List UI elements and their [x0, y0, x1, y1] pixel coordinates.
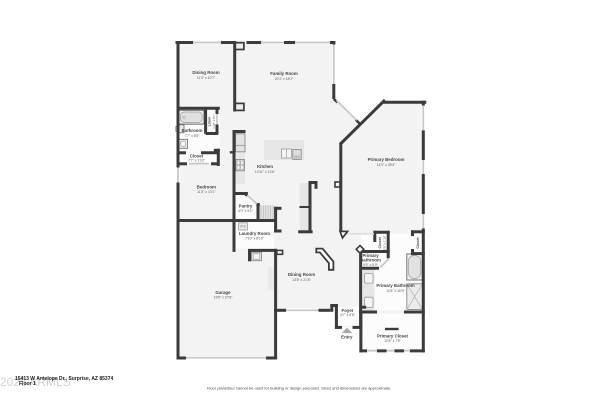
svg-text:11'3" x 13'1": 11'3" x 13'1": [197, 190, 216, 194]
svg-text:Closet: Closet: [416, 237, 420, 249]
svg-text:Entry: Entry: [341, 334, 353, 339]
svg-text:7'7" x 8'5": 7'7" x 8'5": [185, 134, 201, 138]
svg-text:Floor plans/tour cannot be use: Floor plans/tour cannot be used for buil…: [207, 386, 391, 391]
svg-text:Bathroom: Bathroom: [182, 128, 203, 133]
svg-text:Closet: Closet: [378, 236, 382, 248]
svg-text:13'8" x 21'8": 13'8" x 21'8": [292, 278, 311, 282]
svg-text:7'10" x 8'10": 7'10" x 8'10": [245, 236, 264, 240]
svg-text:7'7" x 1'10": 7'7" x 1'10": [188, 158, 206, 162]
svg-text:Dining Room: Dining Room: [288, 272, 315, 277]
svg-text:12'5" x 7'9": 12'5" x 7'9": [384, 339, 402, 343]
svg-text:11'8" x 16'9": 11'8" x 16'9": [386, 289, 405, 293]
svg-text:Family Room: Family Room: [270, 71, 298, 76]
svg-text:W/D: W/D: [240, 225, 247, 229]
svg-text:14'11" x 13'6": 14'11" x 13'6": [255, 170, 276, 174]
svg-text:Dining Room: Dining Room: [192, 70, 219, 75]
svg-text:Kitchen: Kitchen: [257, 164, 273, 169]
svg-text:Pantry: Pantry: [239, 204, 253, 209]
svg-text:5'9" x 5'9": 5'9" x 5'9": [363, 263, 379, 267]
svg-text:4'0" x 5'1": 4'0" x 5'1": [238, 209, 254, 213]
svg-text:Bedroom: Bedroom: [197, 185, 216, 190]
svg-text:Garage: Garage: [215, 290, 231, 295]
svg-text:20'1" x 18'1": 20'1" x 18'1": [275, 77, 294, 81]
svg-text:Primary Closet: Primary Closet: [377, 334, 409, 339]
svg-text:Floor 1: Floor 1: [19, 381, 36, 387]
svg-text:4'7" x 5'8": 4'7" x 5'8": [340, 313, 356, 317]
svg-text:Primary Bedroom: Primary Bedroom: [368, 157, 405, 162]
svg-text:14'3" x 28'3": 14'3" x 28'3": [377, 163, 396, 167]
svg-text:Linen: Linen: [208, 116, 212, 127]
svg-text:11'3" x 10'7": 11'3" x 10'7": [197, 76, 216, 80]
svg-text:3'9" x 1'10": 3'9" x 1'10": [382, 235, 386, 250]
svg-text:19'5" x 27'8": 19'5" x 27'8": [214, 295, 233, 299]
svg-text:Laundry Room: Laundry Room: [239, 231, 270, 236]
svg-text:1'10" x 4'1": 1'10" x 4'1": [212, 114, 216, 129]
svg-text:Primary Bathroom: Primary Bathroom: [376, 283, 414, 288]
svg-text:Bathroom: Bathroom: [360, 258, 381, 263]
